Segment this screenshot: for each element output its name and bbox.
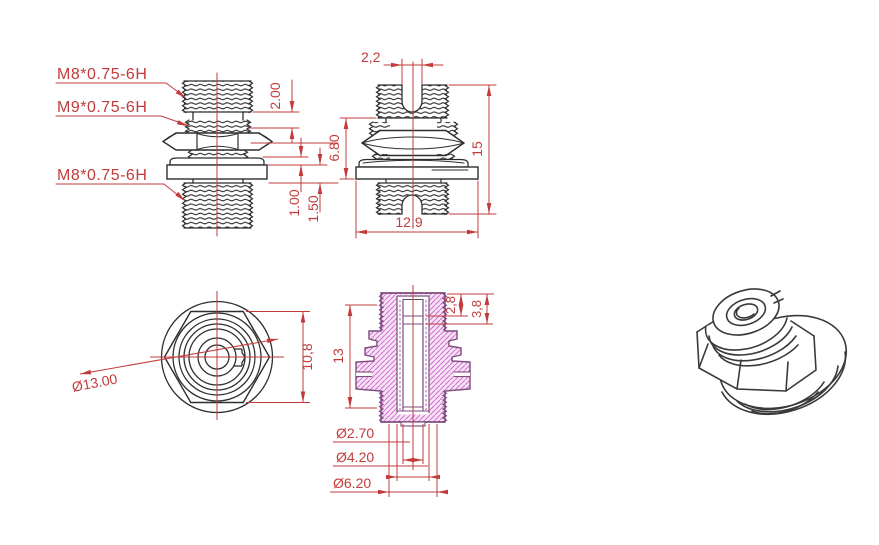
dim-total-height: 15 xyxy=(469,141,485,157)
dim-neck-length: 2.00 xyxy=(267,82,283,109)
front-labels: M8*0.75-6H M9*0.75-6H M8*0.75-6H xyxy=(56,66,189,203)
dim-counterbore-depth-b: 3,8 xyxy=(469,300,484,318)
dim-outer-diameter: Ø13.00 xyxy=(71,370,119,395)
top-view: Ø13.00 10,8 xyxy=(71,291,315,420)
dim-bore-diameter: Ø2.70 xyxy=(336,425,374,441)
side-view: 2,2 6.80 15 12,9 xyxy=(326,49,496,238)
dim-body-length: 13 xyxy=(330,348,346,364)
drawing-canvas: M8*0.75-6H M9*0.75-6H M8*0.75-6H 2.00 xyxy=(0,0,879,545)
thread-label-bottom: M8*0.75-6H xyxy=(57,167,147,184)
dim-mid-length: 6.80 xyxy=(326,134,342,161)
front-view: M8*0.75-6H M9*0.75-6H M8*0.75-6H 2.00 xyxy=(56,66,338,236)
dim-sleeve-diameter: Ø4.20 xyxy=(336,449,374,465)
dim-thread-minor-diameter: Ø6.20 xyxy=(333,475,371,491)
thread-label-top: M8*0.75-6H xyxy=(57,66,147,83)
engineering-drawing-page: M8*0.75-6H M9*0.75-6H M8*0.75-6H 2.00 xyxy=(0,0,879,545)
front-m9-thread xyxy=(186,120,251,134)
isometric-view xyxy=(697,281,858,424)
section-view: 13 2,8 3,8 Ø2.70 Ø4.20 xyxy=(330,285,494,497)
thread-label-mid: M9*0.75-6H xyxy=(57,99,147,116)
side-flange xyxy=(356,167,478,179)
dim-washer-thickness: 1.00 xyxy=(286,189,302,216)
dim-flange-thickness: 1.50 xyxy=(305,195,321,222)
dim-flange-width: 12,9 xyxy=(395,214,422,230)
dim-counterbore-depth-a: 2,8 xyxy=(443,296,458,314)
dim-across-flats: 10,8 xyxy=(299,343,315,370)
dim-slot-width: 2,2 xyxy=(361,49,381,65)
front-dimensions: 2.00 1.00 1.50 xyxy=(249,80,338,223)
